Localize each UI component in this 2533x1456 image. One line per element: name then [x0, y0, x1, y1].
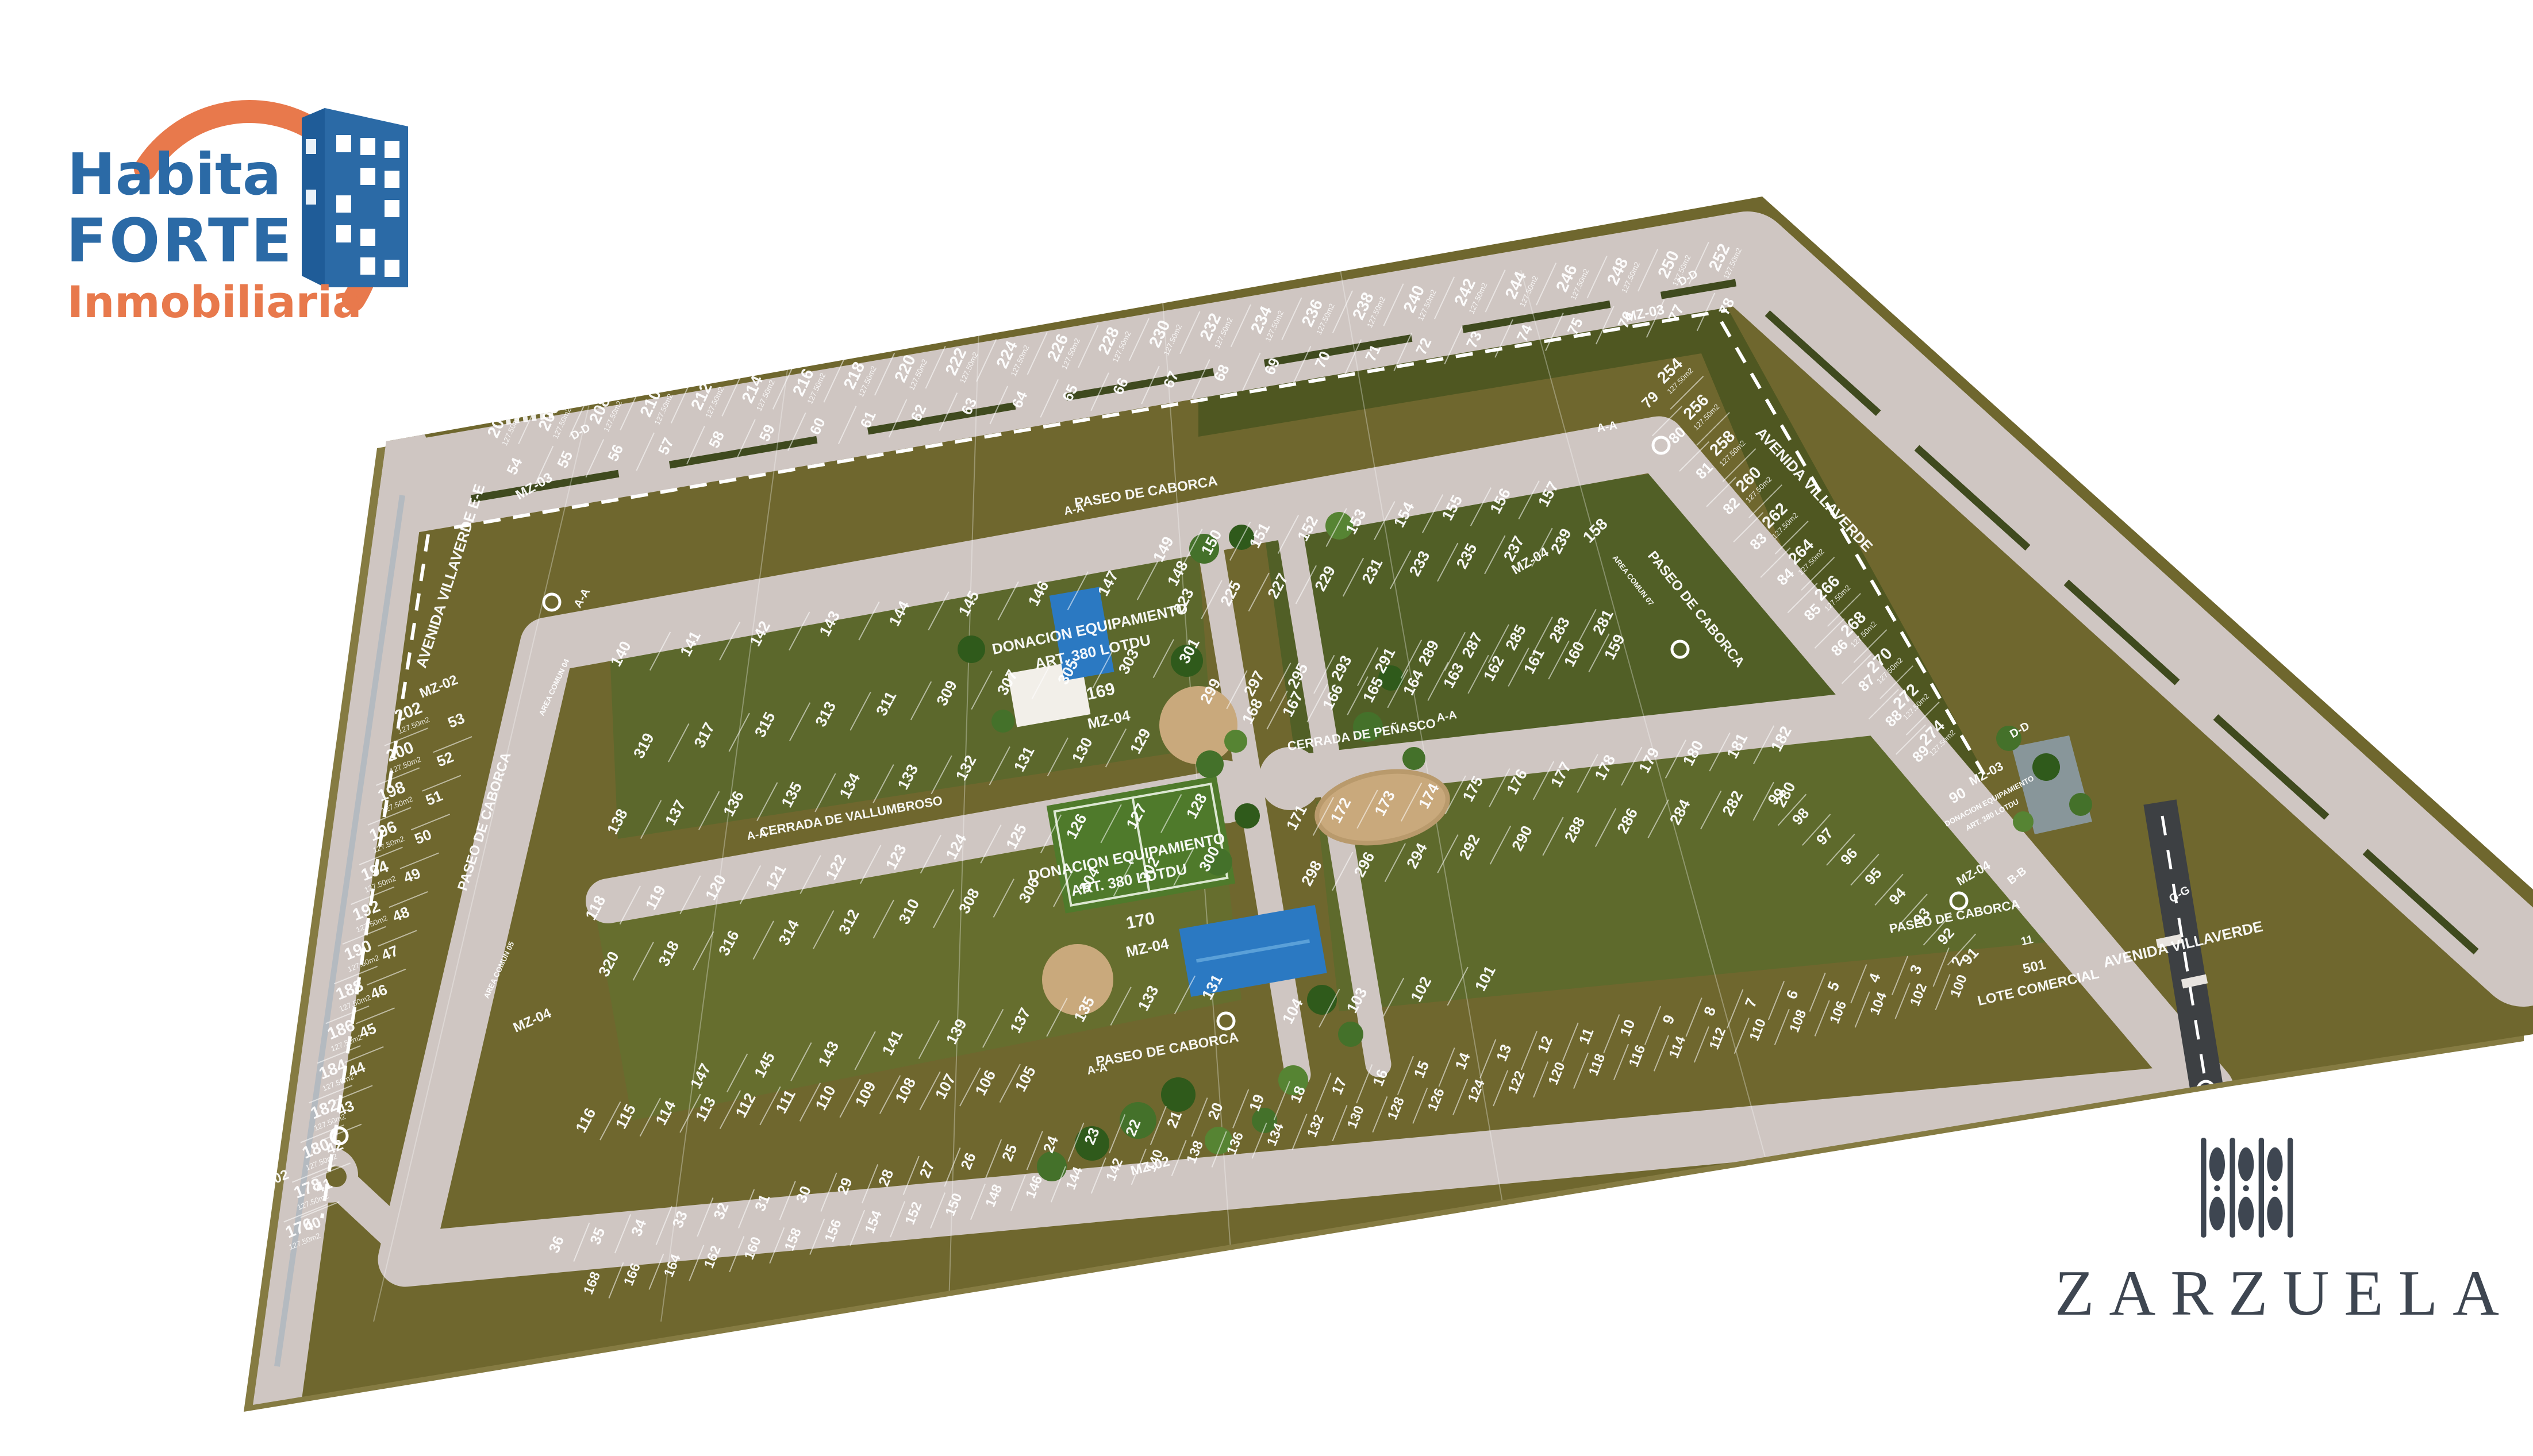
section-marker: D-D: [558, 370, 582, 391]
section-marker: D-D: [716, 284, 740, 305]
street-avenida-villaverde-top: AVENIDA VILLAVERDE: [698, 247, 862, 287]
zarzuela-bars-icon: [2196, 1137, 2305, 1239]
zarzuela-wordmark: ZARZUELA: [2055, 1257, 2446, 1331]
zarzuela-logo: ZARZUELA: [2055, 1137, 2446, 1395]
section-marker: D-D: [720, 329, 744, 350]
page: Habita FORTE Inmobiliaria: [0, 0, 2533, 1456]
street-avenida-villaverde-ff: AVENIDA VILLAVERDE F-F: [140, 669, 216, 856]
